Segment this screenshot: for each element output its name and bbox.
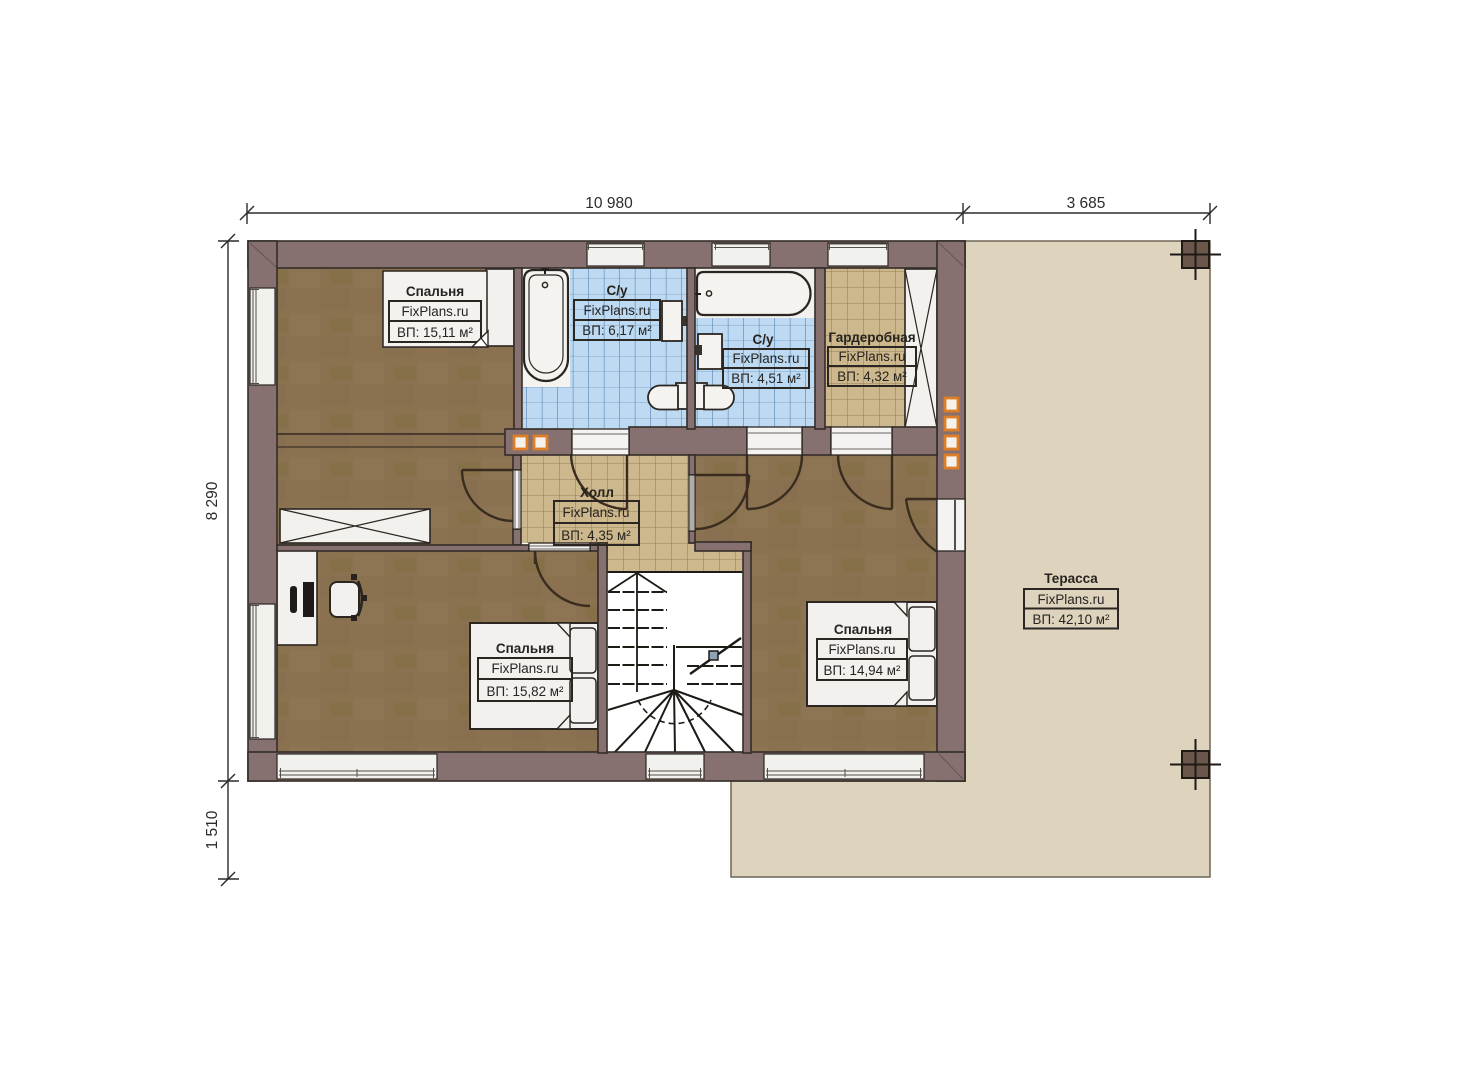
svg-text:С/у: С/у: [606, 283, 628, 298]
svg-text:FixPlans.ru: FixPlans.ru: [1038, 592, 1105, 607]
svg-text:ВП: 4,35 м²: ВП: 4,35 м²: [561, 528, 631, 543]
svg-text:ВП: 15,11 м²: ВП: 15,11 м²: [397, 325, 473, 340]
svg-text:С/у: С/у: [752, 332, 774, 347]
svg-text:ВП: 4,51 м²: ВП: 4,51 м²: [731, 371, 801, 386]
svg-text:Спальня: Спальня: [496, 641, 554, 656]
svg-text:ВП: 42,10 м²: ВП: 42,10 м²: [1033, 612, 1110, 627]
svg-text:Гардеробная: Гардеробная: [828, 330, 915, 345]
svg-text:FixPlans.ru: FixPlans.ru: [829, 642, 896, 657]
svg-text:Холл: Холл: [580, 485, 614, 500]
svg-text:ВП: 6,17 м²: ВП: 6,17 м²: [582, 323, 652, 338]
svg-text:10 980: 10 980: [585, 195, 633, 212]
svg-text:1 510: 1 510: [204, 810, 221, 849]
svg-text:FixPlans.ru: FixPlans.ru: [584, 303, 651, 318]
svg-text:3 685: 3 685: [1067, 195, 1106, 212]
svg-text:ВП: 14,94 м²: ВП: 14,94 м²: [824, 663, 901, 678]
svg-text:FixPlans.ru: FixPlans.ru: [839, 349, 906, 364]
svg-text:FixPlans.ru: FixPlans.ru: [563, 505, 630, 520]
svg-text:FixPlans.ru: FixPlans.ru: [733, 351, 800, 366]
svg-text:8 290: 8 290: [204, 481, 221, 520]
svg-text:FixPlans.ru: FixPlans.ru: [492, 661, 559, 676]
svg-text:Спальня: Спальня: [406, 284, 464, 299]
svg-text:FixPlans.ru: FixPlans.ru: [402, 304, 469, 319]
svg-text:ВП: 15,82 м²: ВП: 15,82 м²: [487, 684, 564, 699]
svg-text:ВП: 4,32 м²: ВП: 4,32 м²: [837, 369, 907, 384]
svg-text:Терасса: Терасса: [1044, 571, 1098, 586]
svg-text:Спальня: Спальня: [834, 622, 892, 637]
